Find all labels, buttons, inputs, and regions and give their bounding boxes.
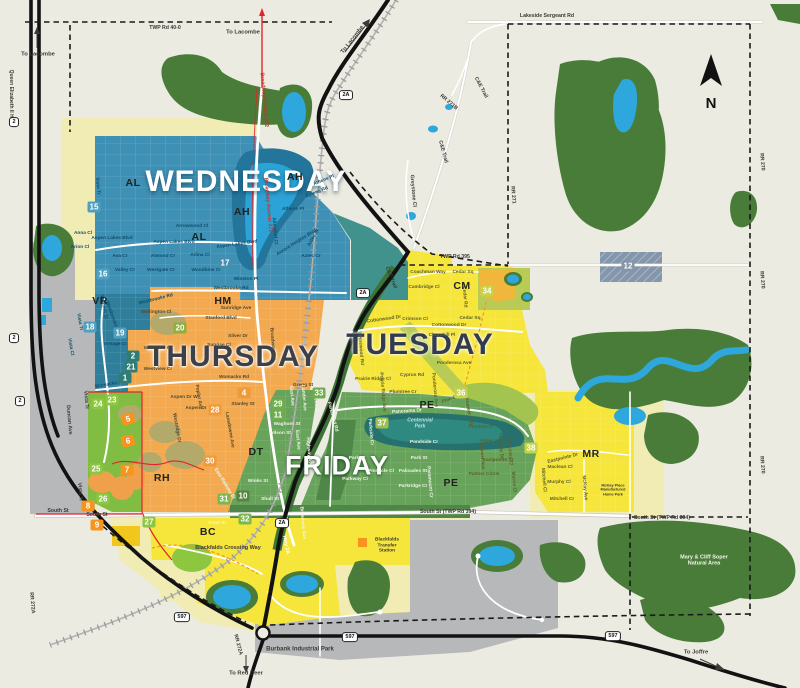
street-label: Prairie Ridge Ave [378, 372, 387, 412]
street-label: Plumtree Cr [389, 390, 416, 396]
street-label: Valmont St [98, 294, 108, 319]
place-label: Burbank Industrial Park [266, 647, 334, 654]
street-label: Westview Cr [144, 367, 172, 373]
zone-badge-23: 23 [106, 395, 119, 406]
road-label: TWP Rd 40-0 [149, 26, 181, 32]
collection-schedule-map: N WEDNESDAY THURSDAY TUESDAY FRIDAY Vist… [0, 0, 800, 688]
street-label: Sunrise Cl [207, 343, 231, 349]
street-label: Eastpointe St [483, 458, 514, 464]
road-label: Duncan Ave [64, 405, 73, 435]
street-label: Womacks Rd [95, 380, 126, 391]
street-label: Coachman Way [410, 270, 446, 276]
zone-badge-15: 15 [88, 202, 101, 213]
place-label: Blackfalds Crossing Way [195, 545, 261, 551]
zone-badge-2: 2 [127, 351, 140, 362]
road-label: South St (TWP Rd 394) [634, 516, 690, 522]
zone-badge-18: 18 [84, 322, 97, 333]
street-label: Park St [411, 456, 428, 462]
highway-shield-2: 2 [9, 117, 19, 127]
street-label: McKay Ave [580, 475, 588, 501]
street-label: Morris Cl [509, 471, 516, 492]
street-label: Aztec St [307, 228, 321, 247]
road-label: RR 270 [757, 153, 764, 171]
road-label: RR 272A [231, 634, 242, 656]
zone-badge-26: 26 [97, 494, 110, 505]
street-label: Panorama Dr [392, 408, 422, 416]
street-label: Stanley St [231, 402, 254, 408]
street-label: Shull St [261, 497, 279, 503]
street-label: Park St [349, 456, 366, 462]
highway-shield-2A: 2A [356, 288, 370, 298]
street-label: Womacks Rd [219, 375, 249, 381]
road-label: C&E Trail [436, 140, 448, 164]
highway-shield-2A: 2A [275, 518, 289, 528]
highway-shield-2: 2 [15, 396, 25, 406]
street-label: Aspen Dr [185, 406, 206, 412]
zone-badge-7: 7 [121, 465, 134, 476]
street-label: Cambridge Cl [408, 285, 439, 291]
street-label: Cottonwood Dr [366, 315, 401, 325]
direction-label: To Lacombe [226, 30, 260, 37]
street-label: Stanford Blvd [205, 316, 236, 322]
neighborhood-code: HM [214, 295, 231, 307]
neighborhood-code: MR [582, 448, 599, 460]
street-label: Aspen Lakes Blvd [91, 236, 132, 242]
street-label: Pinetree Cl [468, 425, 493, 431]
place-label: Blackfalds Transfer Station [375, 538, 399, 555]
zone-badge-12: 12 [622, 261, 635, 272]
street-label: Athens Pl [282, 207, 304, 213]
street-label: Queen Cl [311, 391, 318, 412]
neighborhood-code: BC [200, 526, 216, 538]
neighborhood-code: DT [249, 446, 264, 458]
street-label: Vista Cl [66, 338, 74, 356]
street-label: Eastpointe Dr [547, 453, 579, 466]
street-label: Pine Cl [441, 395, 458, 406]
street-label: Westbrooke Rd [213, 286, 248, 292]
neighborhood-code: VR [92, 295, 108, 307]
neighborhood-code: AH [287, 171, 303, 183]
street-label: Sunridge Ave [221, 306, 252, 312]
street-label: Allendorf Cl [270, 217, 278, 245]
street-label: Cedar Sq [459, 316, 480, 322]
street-label: Maclean Cl [547, 465, 572, 471]
neighborhood-code: PE [443, 477, 458, 489]
neighborhood-code: RH [154, 472, 170, 484]
street-label: Waghorn St [274, 422, 301, 428]
street-label: Ponderosa Ave [437, 361, 472, 367]
zone-badge-6: 6 [120, 434, 135, 447]
road-label: South St (TWP Rd 394) [420, 510, 476, 516]
street-label: Vintage Cl [103, 342, 126, 348]
road-label: TWP Rd 395 [440, 255, 470, 261]
zone-badge-28: 28 [209, 405, 222, 416]
neighborhood-code: PE [419, 399, 434, 411]
road-label: Broadway Avenue 272 [258, 73, 269, 128]
street-label: Pondside Cr [410, 440, 438, 446]
neighborhood-code: AL [192, 231, 207, 243]
road-label: RR 270 [757, 271, 764, 289]
street-label: Westview Cr [144, 346, 172, 352]
street-label: Anna Cl [74, 231, 92, 237]
street-label: Paramount Cr [425, 466, 433, 498]
road-label: Greystone Cl [408, 175, 417, 208]
street-label: Winston Pl [234, 277, 259, 283]
zone-badge-36: 36 [455, 388, 468, 399]
highway-shield-2A: 2A [339, 90, 353, 100]
road-label: Broadway Avenue 272 [262, 178, 273, 233]
street-label: Vista Tr [94, 177, 101, 195]
highway-shield-597: 597 [174, 612, 190, 622]
street-label: Pioneer Way [462, 397, 473, 426]
neighborhood-code: AH [234, 206, 250, 218]
zone-badge-24: 24 [92, 399, 105, 410]
zone-badge-11: 11 [272, 410, 285, 421]
road-label: South St [86, 513, 107, 519]
direction-label: To Lacombe [340, 25, 366, 56]
place-label: Centennial Park [407, 418, 433, 430]
street-label: Prairie Ridge Cl [355, 377, 391, 383]
street-label: Westgate Cr [147, 268, 175, 274]
street-label: Pioneer Ave [477, 442, 485, 470]
zone-badge-38: 38 [525, 443, 538, 454]
street-label: Parkwood Rd [325, 401, 338, 432]
street-label: Arrowwood Cl [176, 224, 209, 230]
zone-badge-17: 17 [219, 258, 232, 269]
street-label: Aurora Heights Blvd [276, 228, 318, 257]
street-label: Pinewood Rd [356, 335, 364, 366]
street-label: Parkway Cl [342, 477, 368, 483]
street-label: Churchill Pl [429, 333, 456, 339]
zone-badge-8: 8 [82, 501, 95, 512]
street-label: Aspen Lakes Blvd [153, 240, 194, 246]
street-label: Athens Rd [305, 186, 329, 200]
zone-badge-10: 10 [237, 491, 250, 502]
street-label: Westbrooke Rd [103, 301, 120, 336]
road-label: RR 271B [438, 94, 458, 112]
street-label: Cedar Rd [460, 286, 467, 308]
street-label: Broadway Ave [268, 327, 276, 360]
road-label: C&E Trail [472, 76, 488, 99]
road-label: Vista Tr [75, 482, 83, 501]
road-label: RR 271 [508, 186, 515, 204]
street-label: Athens Pl [313, 174, 336, 187]
place-label: Mary & Cliff Soper Natural Area [680, 555, 728, 568]
zone-badge-4: 4 [238, 388, 251, 399]
street-label: Poplar Ave [193, 384, 203, 409]
street-label: Parkside Cr [366, 418, 374, 445]
street-label: Murphy Cl [547, 480, 570, 486]
street-label: Lansdowne Ave [223, 412, 235, 449]
road-label: RR 272A [27, 592, 35, 614]
street-label: Pinnacle Cl [368, 469, 394, 475]
zone-badge-19: 19 [114, 328, 127, 339]
street-label: Westridge Dr [171, 413, 182, 443]
street-label: Arion Cl [71, 245, 90, 251]
street-label: Parkway Dr [496, 433, 504, 460]
zone-badge-20: 20 [174, 323, 187, 334]
street-label: Trout St [208, 521, 226, 527]
street-label: Aztec Cr [301, 254, 320, 260]
street-label: Parkridge Cr [399, 484, 428, 490]
street-label: Woodbine Cl [191, 268, 220, 274]
street-label: Aspen Lakes Blvd [216, 239, 258, 250]
direction-label: To Lacombe [21, 52, 55, 59]
street-label: McKinley Cl [505, 438, 513, 466]
street-label: Lander Ave [299, 385, 307, 411]
street-label: Mitchell Cr [550, 497, 575, 503]
zone-badge-1: 1 [119, 373, 132, 384]
road-label: RR 270 [757, 456, 764, 474]
zone-badge-30: 30 [204, 456, 217, 467]
road-label: Hwy 2A [280, 535, 290, 555]
zone-badge-9: 9 [91, 520, 104, 531]
street-label: Ponderosa Ave [430, 373, 439, 408]
road-label: Vista Tr [81, 390, 89, 409]
street-label: Ava Cr [112, 254, 127, 260]
zone-badge-31: 31 [218, 494, 231, 505]
street-label: Highway Ave [304, 437, 312, 467]
street-label: Silver Dr [228, 334, 248, 340]
street-label: Crimson Cl [402, 317, 428, 323]
zone-badge-32: 32 [239, 514, 252, 525]
zone-badge-37: 37 [376, 418, 389, 429]
zone-badge-33: 33 [313, 388, 326, 399]
street-label: Wellington Cl [141, 310, 172, 316]
street-label: East Ave [293, 430, 300, 450]
street-label: Winks St [248, 479, 268, 485]
zone-badge-16: 16 [97, 269, 110, 280]
zone-badge-25: 25 [90, 464, 103, 475]
street-label: Westbrooke Rd [138, 293, 173, 307]
street-label: Palisades St [399, 469, 427, 475]
street-label: Cyprus Rd [400, 373, 424, 379]
street-label: Almond Cr [151, 254, 176, 260]
road-label: South St [47, 509, 68, 515]
neighborhood-code: CM [453, 280, 470, 292]
street-label: Piper Cl [481, 439, 499, 445]
zone-badge-5: 5 [120, 412, 135, 426]
label-layer: Vista TrAnna ClArion ClAva CrValley CrAs… [0, 0, 800, 688]
street-label: Adina Cl [190, 253, 209, 259]
street-label: Palmer Circle [469, 472, 500, 478]
street-label: East Ave [287, 386, 294, 406]
street-label: Aspen Dr W [170, 395, 197, 401]
zone-badge-34: 34 [481, 286, 494, 297]
street-label: Cedar Sq [452, 270, 473, 276]
zone-badge-29: 29 [272, 399, 285, 410]
neighborhood-code: AL [126, 177, 141, 189]
highway-shield-597: 597 [342, 632, 358, 642]
street-label: Broadway Ave [298, 506, 306, 539]
street-label: Mitchell Cl [539, 468, 547, 492]
highway-shield-597: 597 [605, 631, 621, 641]
street-label: Gregg St [293, 383, 313, 389]
street-label: Valley Cr [115, 268, 135, 274]
direction-label: To Red Deer [229, 671, 263, 678]
road-label: Queen Elizabeth II Hwy [7, 70, 13, 125]
street-label: East Railway St [212, 467, 235, 500]
zone-badge-21: 21 [125, 362, 138, 373]
street-label: Cottonwood Dr [432, 323, 467, 329]
highway-shield-2: 2 [9, 333, 19, 343]
road-label: Lakeside Sergeant Rd [520, 14, 574, 20]
zone-badge-27: 27 [143, 517, 156, 528]
place-label: McKay Place Manufactured Home Park [601, 483, 626, 496]
street-label: Vista Tr [75, 313, 83, 331]
street-label: Wilson St [269, 431, 291, 437]
direction-label: To Joffre [684, 650, 708, 657]
road-label: C&E Trail [383, 266, 397, 290]
